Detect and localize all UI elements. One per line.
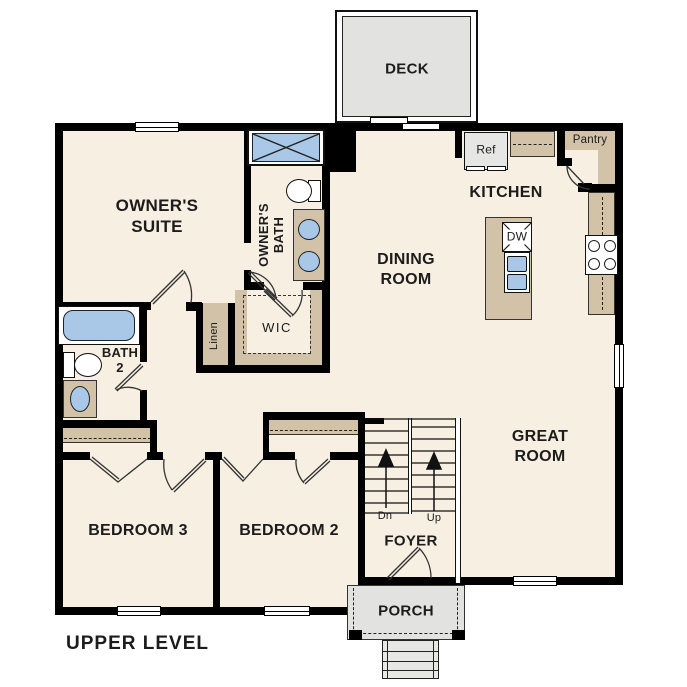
label-pantry: Pantry <box>573 133 607 147</box>
interior-wall <box>196 365 330 373</box>
pantry-wall <box>588 184 619 192</box>
sliding-door <box>402 123 440 130</box>
interior-wall <box>455 131 462 158</box>
interior-wall <box>263 412 365 420</box>
stove-burner <box>588 258 600 270</box>
vanity-sink <box>298 219 320 240</box>
kitchen-upper-cabinet <box>510 131 555 157</box>
sink-basin <box>507 256 527 272</box>
room-label-foyer: FOYER <box>384 533 437 552</box>
interior-wall <box>263 452 295 460</box>
label-linen: Linen <box>208 322 222 350</box>
bedroom2-closet-shelf <box>269 420 358 435</box>
room-label-owners-suite: OWNER'S SUITE <box>116 195 199 238</box>
refrigerator-handle <box>466 166 485 171</box>
room-label-bath2: BATH 2 <box>102 346 138 376</box>
interior-wall <box>196 303 203 372</box>
wic-shelf <box>235 353 322 365</box>
room-label-deck: DECK <box>385 61 429 80</box>
stair-rail <box>455 418 461 583</box>
room-label-dining: DINING ROOM <box>377 250 435 290</box>
floor-bedrooms <box>63 577 360 607</box>
label-ref: Ref <box>476 143 495 158</box>
room-label-bedroom3: BEDROOM 3 <box>88 521 188 541</box>
window <box>614 344 624 388</box>
room-label-wic: WIC <box>262 320 292 336</box>
interior-wall <box>63 452 90 460</box>
toilet <box>74 353 102 377</box>
bedroom3-closet-shelf <box>63 428 152 443</box>
interior-wall <box>244 282 264 290</box>
porch-post <box>349 630 362 640</box>
refrigerator-handle <box>487 166 506 171</box>
room-label-owners-bath: OWNER'S BATH <box>257 203 287 267</box>
stove-burner <box>604 240 616 252</box>
floor-plan: DECK OWNER'S SUITE OWNER'S BATH Pantry R… <box>0 0 687 687</box>
room-label-great: GREAT ROOM <box>512 427 568 467</box>
window <box>513 576 557 586</box>
label-stairs-down: Dn <box>378 510 392 524</box>
window <box>117 606 161 616</box>
stair-wall <box>358 418 365 585</box>
room-label-porch: PORCH <box>378 603 434 622</box>
porch-post <box>452 630 465 640</box>
plan-title: UPPER LEVEL <box>66 633 209 655</box>
stove-burner <box>604 258 616 270</box>
interior-wall <box>140 308 147 362</box>
porch-steps <box>382 640 439 679</box>
sink-basin <box>507 274 527 290</box>
window <box>264 606 310 616</box>
room-label-kitchen: KITCHEN <box>469 183 542 203</box>
interior-wall <box>147 452 163 460</box>
interior-wall <box>55 420 157 428</box>
interior-wall <box>140 390 147 420</box>
pantry-wall <box>557 158 572 166</box>
room-label-bedroom2: BEDROOM 2 <box>239 521 339 541</box>
label-dw: DW <box>506 230 528 245</box>
toilet <box>286 179 312 203</box>
bedroom-divider-wall <box>213 452 220 607</box>
vanity-sink <box>298 251 320 272</box>
stove-burner <box>588 240 600 252</box>
label-stairs-up: Up <box>427 512 441 526</box>
shower-pan <box>252 133 320 162</box>
window <box>135 122 179 132</box>
stair-divider <box>408 418 412 514</box>
bathtub <box>63 310 135 341</box>
stair-wall <box>358 418 384 424</box>
vanity-sink <box>70 386 90 412</box>
interior-wall <box>228 303 235 372</box>
